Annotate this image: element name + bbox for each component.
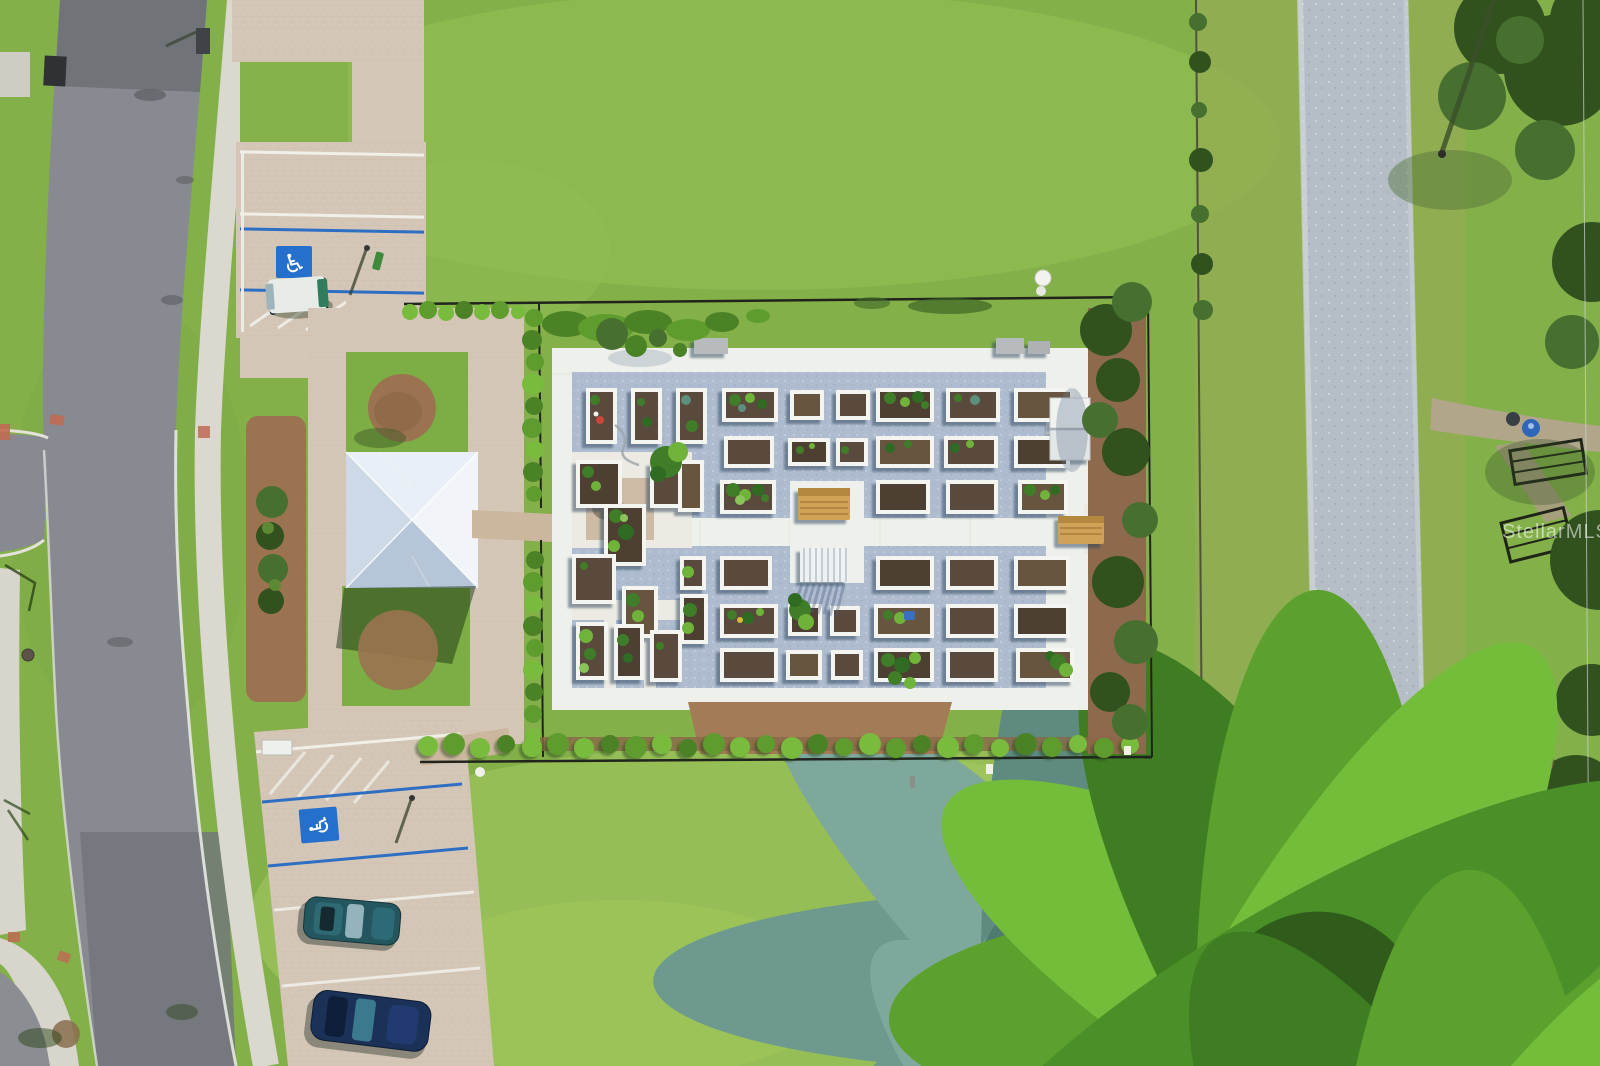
sign-post bbox=[986, 764, 993, 774]
garden-bed bbox=[948, 606, 996, 636]
wheelchair-icon: ♿ bbox=[304, 812, 336, 838]
drain-grate bbox=[43, 55, 67, 86]
parked-car-teal bbox=[296, 895, 402, 952]
aerial-photo: ♿ ♿ bbox=[0, 0, 1600, 1066]
side-street bbox=[0, 434, 48, 552]
grass-pocket bbox=[240, 62, 348, 142]
wooden-bench bbox=[1058, 516, 1104, 544]
drain-grate bbox=[196, 28, 210, 54]
garden-bed bbox=[682, 596, 706, 642]
concrete-pad bbox=[0, 52, 30, 97]
garden-bed bbox=[878, 558, 932, 588]
garden-bed bbox=[838, 392, 868, 418]
garden-bed bbox=[722, 650, 776, 680]
accessible-parking-symbol: ♿ bbox=[299, 806, 340, 843]
garden-bed bbox=[833, 652, 861, 678]
garden-bed bbox=[948, 390, 998, 420]
mulch-circle bbox=[358, 610, 438, 690]
garden-bed bbox=[948, 650, 996, 680]
windshield bbox=[345, 904, 365, 939]
garden-bed bbox=[1016, 606, 1068, 636]
garden-bed bbox=[788, 652, 820, 678]
watering-can bbox=[904, 611, 915, 620]
utility-dome bbox=[1036, 286, 1046, 296]
garden-bed bbox=[792, 392, 822, 418]
garden-bed bbox=[616, 626, 642, 678]
garden-bed bbox=[790, 440, 828, 464]
utility-dome bbox=[1035, 270, 1051, 286]
garden-bed bbox=[722, 558, 770, 588]
post-marker bbox=[475, 767, 485, 777]
garden-bed bbox=[574, 556, 614, 602]
garden-bed bbox=[1016, 558, 1068, 588]
garden-bed bbox=[633, 390, 660, 442]
garden-bed bbox=[948, 482, 996, 512]
wooden-bench bbox=[798, 488, 850, 520]
garden-bed bbox=[726, 438, 772, 466]
garden-entry-path bbox=[472, 510, 552, 542]
garden-bed bbox=[680, 462, 702, 510]
garden-bed bbox=[878, 482, 928, 512]
metal-bench bbox=[1028, 341, 1050, 354]
garden-bed bbox=[948, 558, 996, 588]
post-marker bbox=[910, 776, 915, 788]
metal-bench bbox=[996, 338, 1024, 354]
pergola bbox=[800, 548, 848, 582]
pavilion-roof bbox=[346, 452, 478, 588]
watermark: StellarMLS bbox=[1502, 521, 1600, 543]
metal-bench bbox=[694, 338, 728, 354]
sign-post bbox=[1124, 746, 1131, 755]
garden-bed bbox=[652, 632, 680, 680]
manhole bbox=[22, 649, 34, 661]
accessible-parking-symbol: ♿ bbox=[276, 246, 312, 281]
dark-drum bbox=[1506, 412, 1520, 426]
bench-box bbox=[262, 740, 292, 755]
